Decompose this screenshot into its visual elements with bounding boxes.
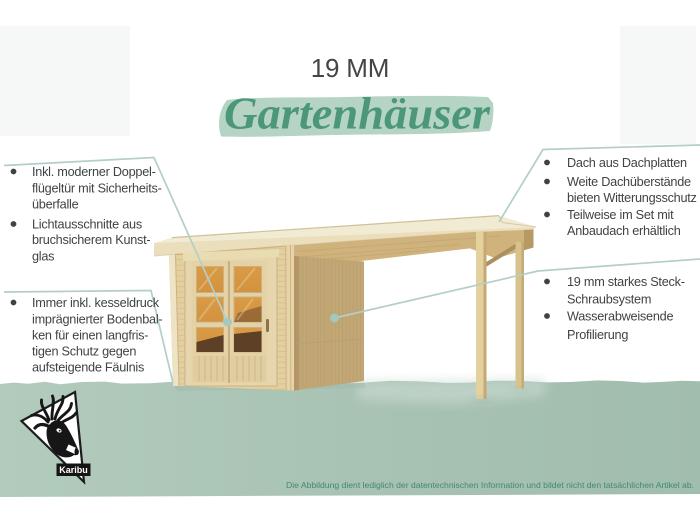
svg-text:Weite Dachüberstände: Weite Dachüberstände bbox=[567, 175, 691, 189]
svg-text:überfalle: überfalle bbox=[32, 198, 79, 212]
svg-text:Schraubsystem: Schraubsystem bbox=[567, 293, 651, 307]
svg-text:Inkl. moderner Doppel-: Inkl. moderner Doppel- bbox=[32, 165, 156, 179]
svg-text:Teilweise im Set mit: Teilweise im Set mit bbox=[567, 208, 674, 222]
svg-text:19 mm starkes Steck-: 19 mm starkes Steck- bbox=[567, 275, 685, 289]
svg-text:tigen Schutz gegen: tigen Schutz gegen bbox=[32, 345, 136, 359]
svg-text:Dach aus Dachplatten: Dach aus Dachplatten bbox=[567, 156, 687, 170]
svg-text:bruchsicherem Kunst-: bruchsicherem Kunst- bbox=[32, 233, 150, 247]
svg-text:19 MM: 19 MM bbox=[311, 53, 389, 83]
svg-text:Wasserabweisende: Wasserabweisende bbox=[567, 310, 673, 324]
svg-text:Profilierung: Profilierung bbox=[567, 328, 628, 342]
svg-text:Die Abbildung dient lediglich: Die Abbildung dient lediglich der datent… bbox=[286, 481, 694, 490]
svg-text:bieten Witterungsschutz: bieten Witterungsschutz bbox=[567, 191, 697, 205]
svg-text:ken für einen langfris-: ken für einen langfris- bbox=[32, 329, 148, 343]
svg-text:Anbaudach erhältlich: Anbaudach erhältlich bbox=[567, 224, 681, 238]
svg-text:Gartenhäuser: Gartenhäuser bbox=[224, 88, 491, 139]
svg-text:Immer inkl. kesseldruck: Immer inkl. kesseldruck bbox=[32, 296, 160, 310]
svg-text:Lichtausschnitte aus: Lichtausschnitte aus bbox=[32, 218, 142, 232]
svg-text:flügeltür mit Sicherheits-: flügeltür mit Sicherheits- bbox=[32, 182, 162, 196]
svg-text:Karibu: Karibu bbox=[59, 465, 88, 475]
svg-text:imprägnierter Bodenbal-: imprägnierter Bodenbal- bbox=[32, 313, 162, 327]
svg-text:aufsteigende Fäulnis: aufsteigende Fäulnis bbox=[32, 360, 144, 374]
svg-text:glas: glas bbox=[32, 249, 54, 263]
